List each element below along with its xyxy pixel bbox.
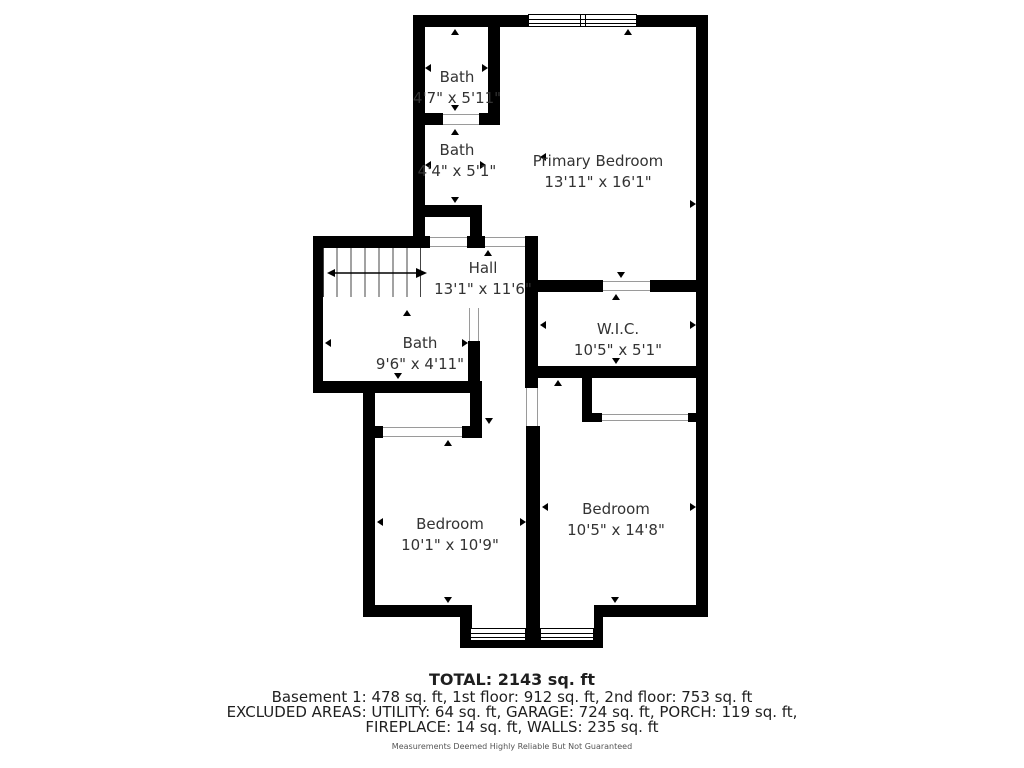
- door-opening: [383, 436, 462, 437]
- dim-arrow-left: [377, 518, 383, 526]
- dim-arrow-left: [540, 321, 546, 329]
- dim-arrow-up: [554, 380, 562, 386]
- bay-interior-left: [472, 605, 526, 629]
- dim-arrow-up: [403, 310, 411, 316]
- room-label-bath-middle: Bath 4'4" x 5'1": [418, 140, 497, 182]
- room-name: Bath: [413, 67, 501, 88]
- bay-interior-right: [540, 605, 594, 629]
- wall-bed1-top-b: [462, 426, 482, 438]
- wall-wic-top-a: [538, 280, 603, 292]
- room-dimensions: 10'5" x 5'1": [574, 340, 662, 361]
- door-opening: [443, 114, 479, 115]
- room-label-bath-lower: Bath 9'6" x 4'11": [376, 333, 464, 375]
- dim-arrow-up: [451, 129, 459, 135]
- room-dimensions: 10'5" x 14'8": [567, 520, 665, 541]
- wall-bath3-right: [468, 341, 480, 383]
- wall-top-left: [413, 15, 528, 27]
- window-bay-left: [470, 628, 526, 641]
- dim-arrow-up: [451, 29, 459, 35]
- wall-bed1-bottom: [363, 605, 470, 617]
- staircase: [323, 248, 429, 297]
- closet-opening: [602, 420, 688, 421]
- room-label-bedroom-left: Bedroom 10'1" x 10'9": [401, 514, 499, 556]
- wall-bed2-bottom: [597, 605, 708, 617]
- dim-arrow-up: [444, 440, 452, 446]
- wall-hall-top-stub: [467, 236, 485, 248]
- door-opening: [526, 388, 527, 426]
- room-label-primary-bedroom: Primary Bedroom 13'11" x 16'1": [533, 151, 664, 193]
- wall-closet-stub-a: [582, 413, 602, 422]
- wall-bed1-left: [363, 381, 375, 617]
- room-dimensions: 9'6" x 4'11": [376, 354, 464, 375]
- room-dimensions: 13'1" x 11'6": [434, 279, 532, 300]
- room-dimensions: 10'1" x 10'9": [401, 535, 499, 556]
- wall-right: [696, 15, 708, 617]
- dim-arrow-right: [690, 503, 696, 511]
- wall-wic-top-b: [650, 280, 708, 292]
- dim-arrow-down: [444, 597, 452, 603]
- excluded-areas-line2: FIREPLACE: 14 sq. ft, WALLS: 235 sq. ft: [0, 718, 1024, 736]
- room-name: Bath: [418, 140, 497, 161]
- dim-arrow-right: [520, 518, 526, 526]
- wall-wic-bottom: [530, 366, 708, 378]
- closet-opening: [602, 414, 688, 415]
- dim-arrow-down: [451, 197, 459, 203]
- dim-arrow-up: [612, 294, 620, 300]
- door-opening: [485, 246, 525, 247]
- dim-arrow-left: [542, 503, 548, 511]
- dim-arrow-right: [690, 200, 696, 208]
- wall-bath-divider-a: [425, 113, 443, 125]
- floor-plan-page: Bath 4'7" x 5'11" Bath 4'4" x 5'1" Prima…: [0, 0, 1024, 768]
- window-mullion: [580, 15, 586, 26]
- door-opening: [383, 427, 462, 428]
- room-name: Bath: [376, 333, 464, 354]
- room-name: Bedroom: [567, 499, 665, 520]
- dim-arrow-down: [617, 272, 625, 278]
- room-label-wic: W.I.C. 10'5" x 5'1": [574, 319, 662, 361]
- door-opening: [537, 388, 538, 426]
- room-name: Primary Bedroom: [533, 151, 664, 172]
- room-label-hall: Hall 13'1" x 11'6": [434, 258, 532, 300]
- dim-arrow-up: [624, 29, 632, 35]
- total-area: TOTAL: 2143 sq. ft: [0, 670, 1024, 689]
- window-glass-line: [471, 633, 525, 638]
- dim-arrow-right: [690, 321, 696, 329]
- door-opening: [443, 124, 479, 125]
- door-opening: [485, 237, 525, 238]
- door-opening: [430, 246, 467, 247]
- room-dimensions: 4'7" x 5'11": [413, 88, 501, 109]
- wall-closet-stub-b: [688, 413, 708, 422]
- window-bay-right: [540, 628, 594, 641]
- door-opening: [478, 308, 479, 341]
- dim-arrow-down: [611, 597, 619, 603]
- room-dimensions: 4'4" x 5'1": [418, 161, 497, 182]
- door-opening: [430, 237, 467, 238]
- door-opening: [603, 281, 650, 282]
- room-dimensions: 13'11" x 16'1": [533, 172, 664, 193]
- room-label-bedroom-right: Bedroom 10'5" x 14'8": [567, 499, 665, 541]
- window-top: [528, 14, 637, 27]
- room-label-bath-upper: Bath 4'7" x 5'11": [413, 67, 501, 109]
- disclaimer: Measurements Deemed Highly Reliable But …: [0, 742, 1024, 751]
- dim-arrow-up: [484, 250, 492, 256]
- wall-bath3-bottom: [313, 381, 480, 393]
- door-opening: [603, 290, 650, 291]
- door-opening: [469, 308, 470, 341]
- room-name: Hall: [434, 258, 532, 279]
- window-glass-line: [541, 633, 593, 638]
- room-name: Bedroom: [401, 514, 499, 535]
- dim-arrow-down: [485, 418, 493, 424]
- room-name: W.I.C.: [574, 319, 662, 340]
- wall-bath-divider-b: [479, 113, 500, 125]
- wall-left-mid: [313, 236, 323, 393]
- wall-stair-top: [313, 236, 430, 248]
- dim-arrow-left: [325, 339, 331, 347]
